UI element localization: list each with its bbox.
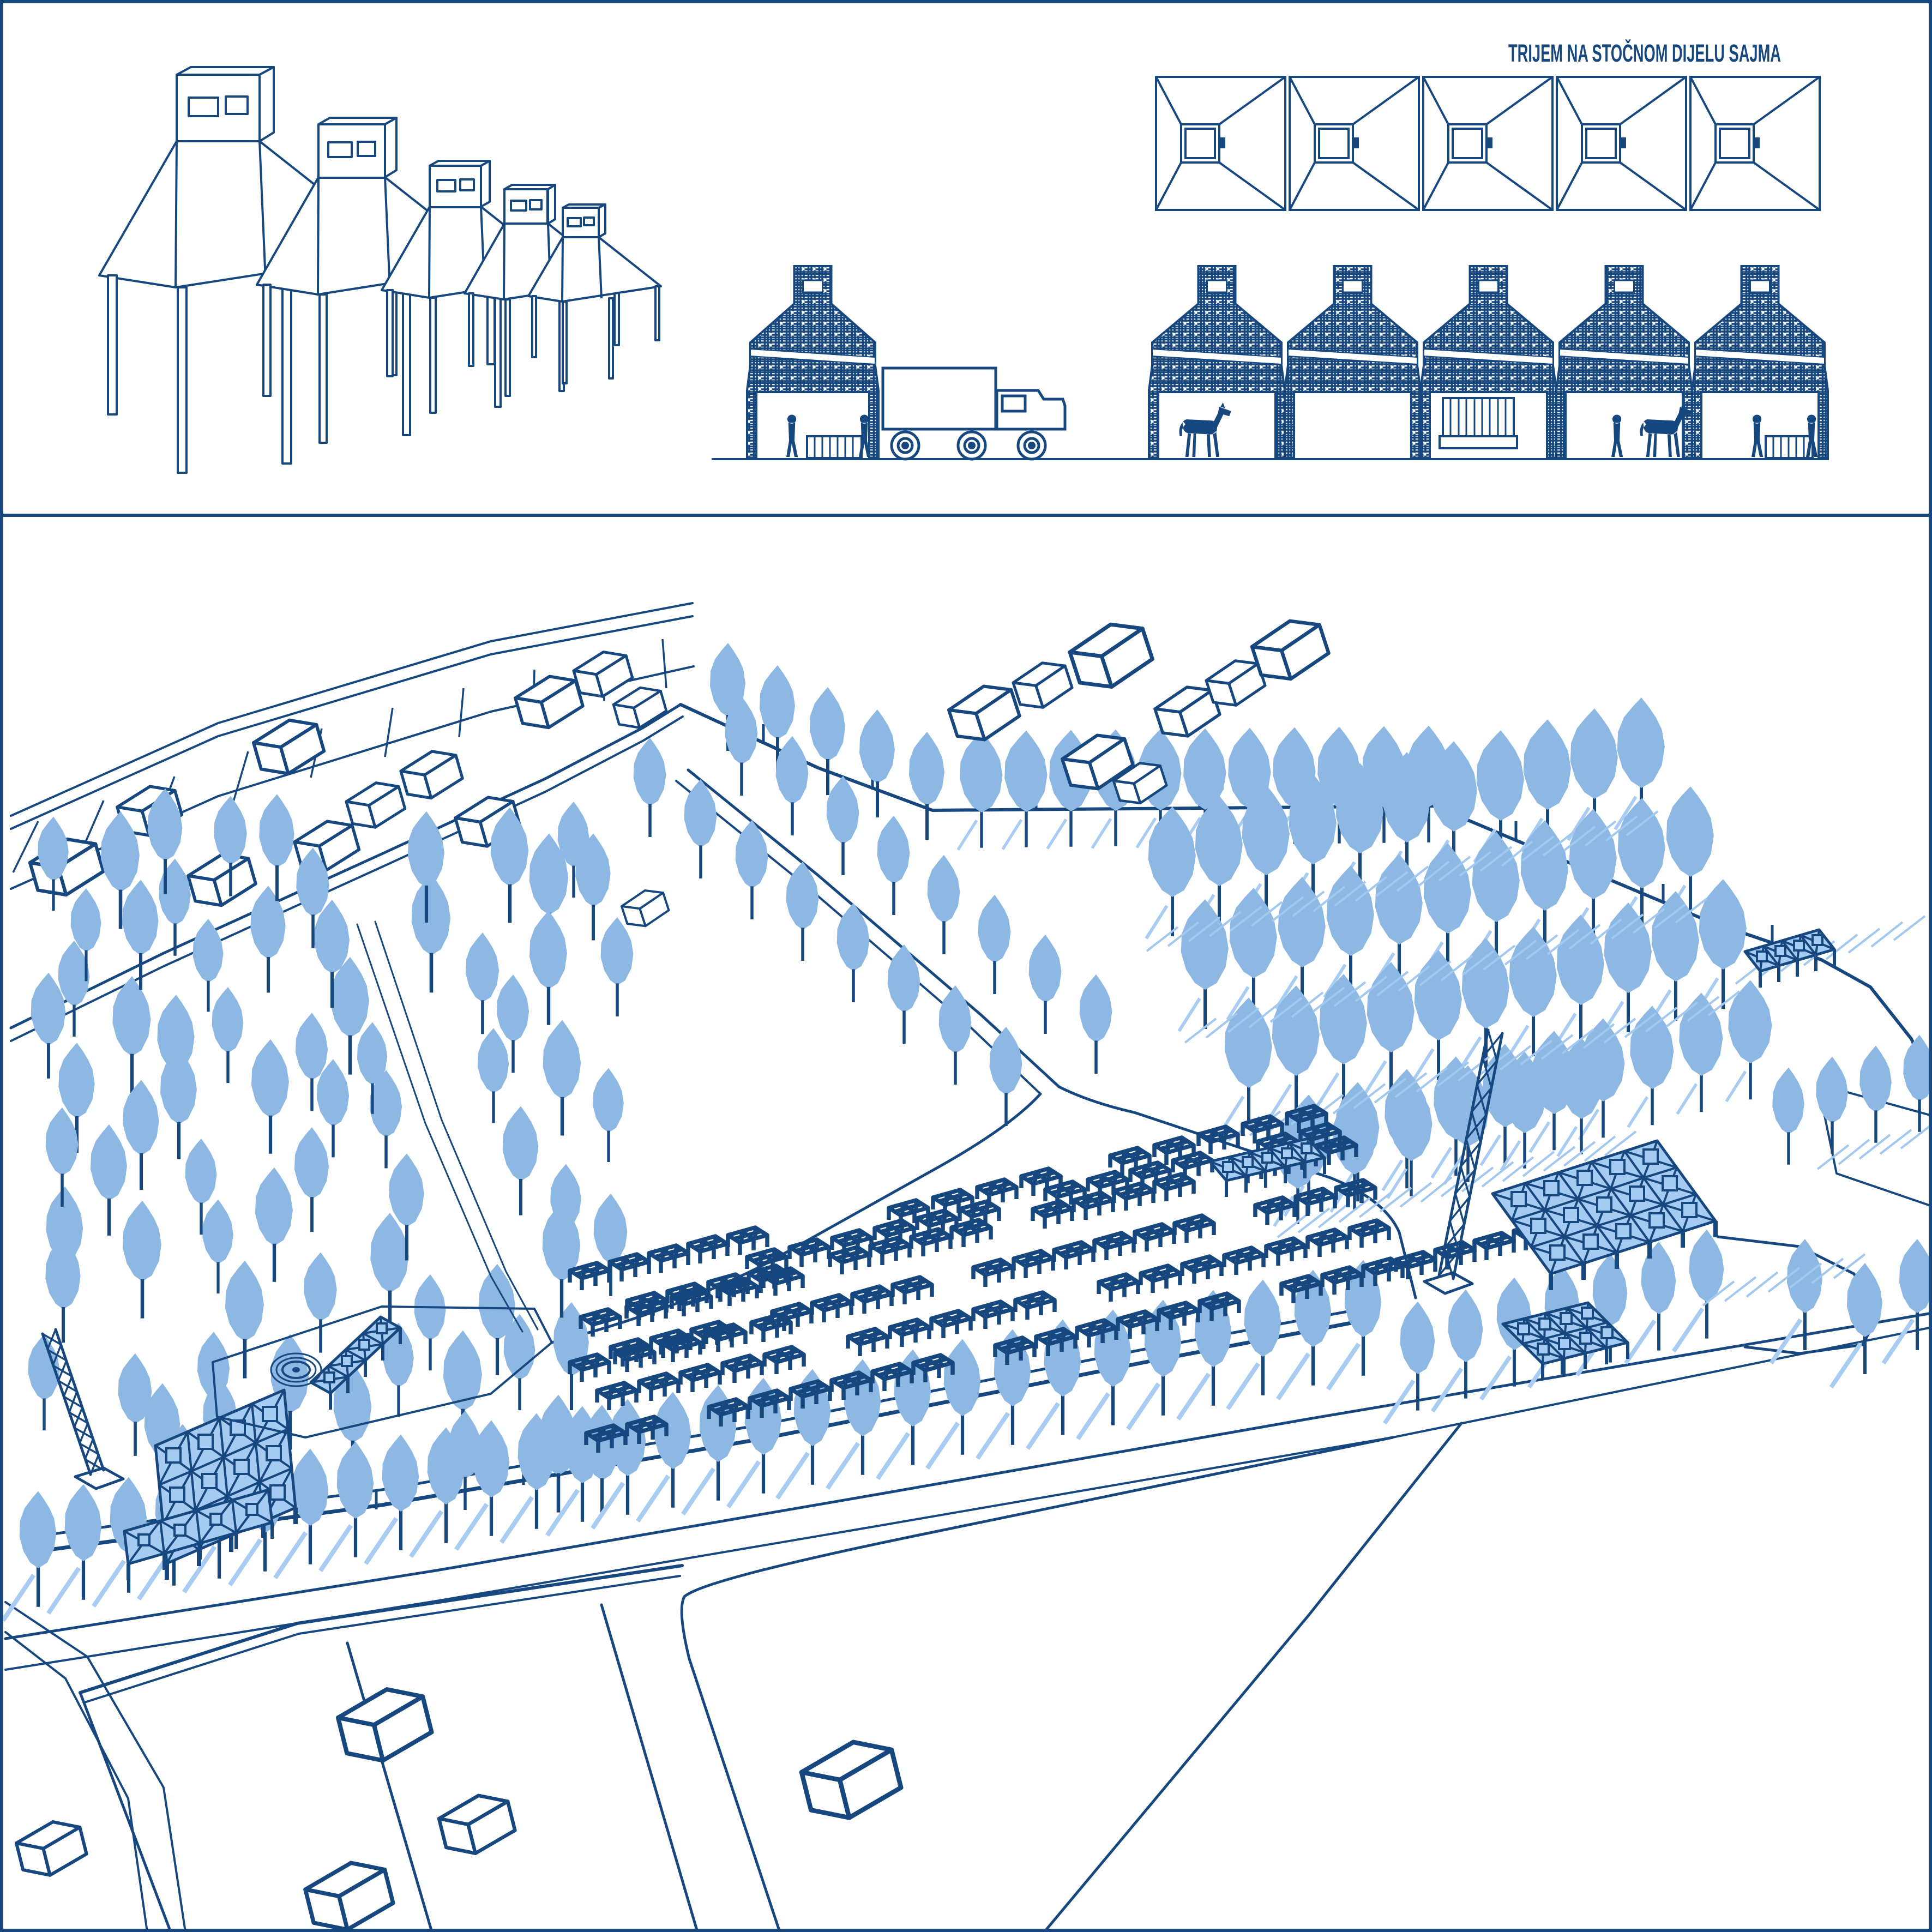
svg-text:TRIJEM NA STOČNOM DIJELU SAJMA: TRIJEM NA STOČNOM DIJELU SAJMA [1508, 39, 1781, 67]
